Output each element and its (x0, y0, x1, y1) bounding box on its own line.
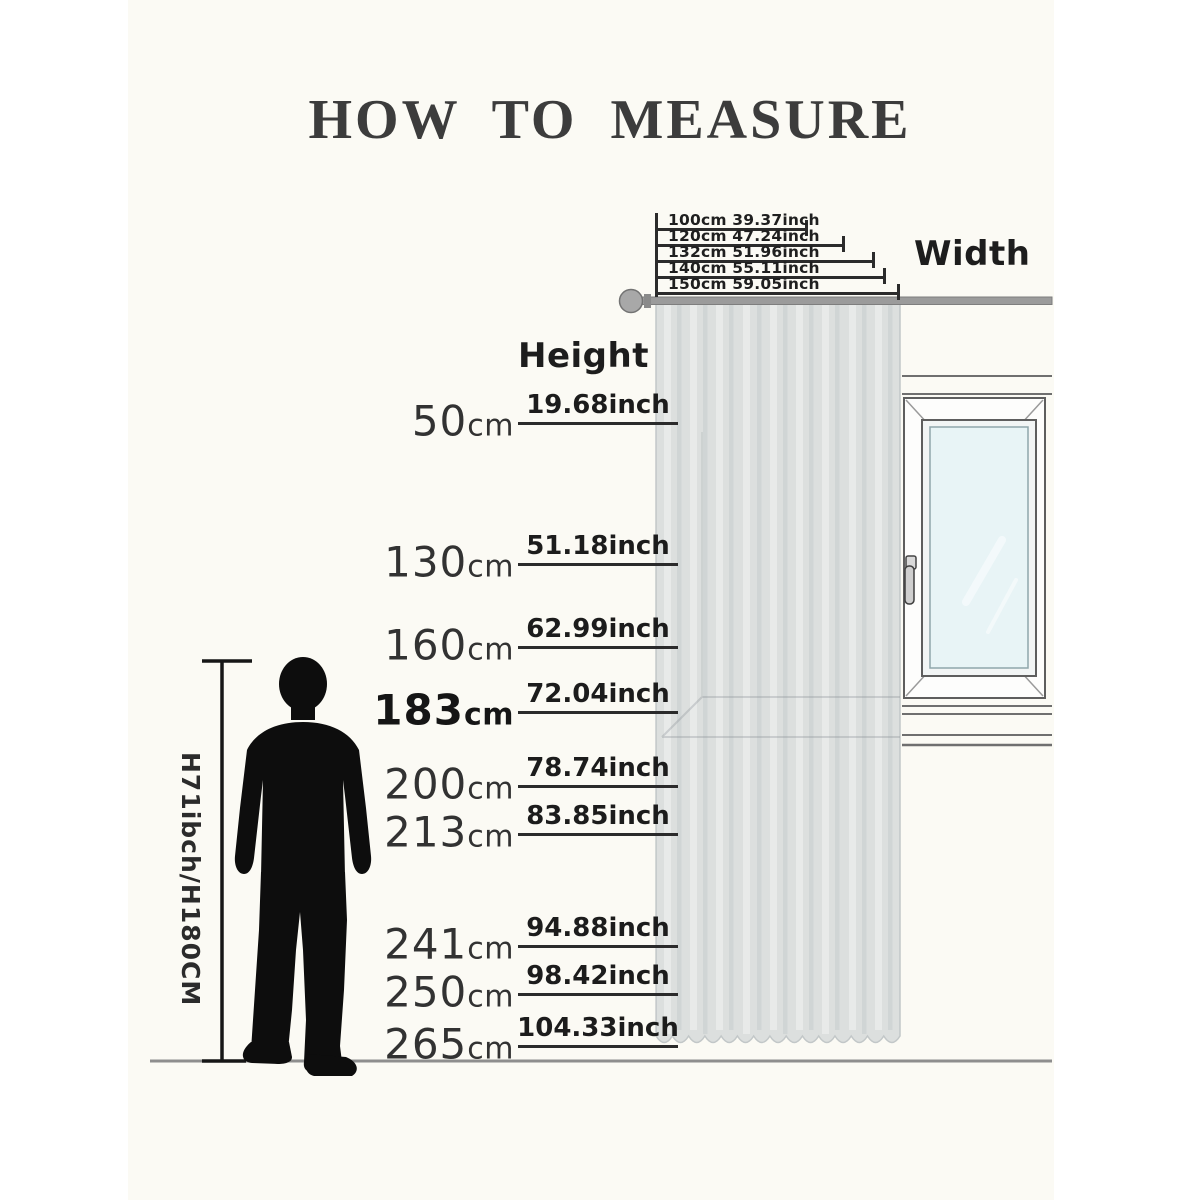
height-cm-value: 183 (373, 686, 464, 735)
height-cm-label: 130cm (230, 538, 514, 587)
height-inch-label: 72.04inch (512, 679, 684, 709)
curtain-fold (729, 304, 734, 1030)
width-measurement-label: 150cm 59.05inch (668, 275, 820, 293)
height-inch-label: 51.18inch (512, 531, 684, 561)
height-cm-unit: cm (467, 1032, 514, 1067)
height-cm-unit: cm (467, 772, 514, 807)
width-ruler-baseline (655, 213, 658, 297)
sheer-curtain (656, 302, 900, 1043)
height-cm-unit: cm (467, 409, 514, 444)
height-cm-value: 50 (412, 397, 467, 446)
curtain-fold (690, 304, 697, 1030)
curtain-fold (835, 304, 840, 1030)
height-measure-line (518, 646, 678, 649)
height-axis-label: Height (518, 336, 649, 376)
height-cm-label: 200cm (230, 760, 514, 809)
curtain-fold (703, 304, 708, 1034)
height-measure-line (518, 945, 678, 948)
height-cm-value: 241 (384, 920, 467, 969)
height-cm-value: 130 (384, 538, 467, 587)
height-inch-label: 98.42inch (512, 961, 684, 991)
window (902, 376, 1052, 745)
height-cm-label: 160cm (230, 621, 514, 670)
height-cm-unit: cm (464, 698, 514, 733)
height-cm-label: 50cm (230, 397, 514, 446)
height-cm-label: 183cm (230, 686, 514, 735)
height-cm-value: 160 (384, 621, 467, 670)
height-cm-unit: cm (467, 980, 514, 1015)
person-height-label: H71ibch/H180CM (176, 752, 205, 982)
window-sill-lines (902, 706, 1052, 745)
height-inch-label: 94.88inch (512, 913, 684, 943)
height-inch-label: 83.85inch (512, 801, 684, 831)
height-measure-line (518, 993, 678, 996)
curtain-fold (783, 304, 788, 1034)
height-measure-line (518, 711, 678, 714)
curtain-fold (875, 304, 882, 1030)
width-measure-tick (897, 284, 900, 300)
height-measure-line (518, 1045, 678, 1048)
height-cm-value: 265 (384, 1020, 467, 1069)
height-cm-unit: cm (467, 932, 514, 967)
title: HOW TO MEASURE (240, 88, 980, 152)
height-inch-label: 104.33inch (512, 1013, 684, 1043)
height-cm-value: 200 (384, 760, 467, 809)
height-inch-label: 62.99inch (512, 614, 684, 644)
height-inch-label: 19.68inch (512, 390, 684, 420)
window-glass (930, 427, 1028, 668)
width-measure-tick (842, 236, 845, 252)
height-measure-line (518, 785, 678, 788)
curtain-fold (862, 304, 867, 1034)
curtain-fold (716, 304, 723, 1030)
width-measure-tick (883, 268, 886, 284)
width-measure-tick (872, 252, 875, 268)
height-cm-unit: cm (467, 633, 514, 668)
rod-finial (620, 290, 643, 313)
height-cm-label: 213cm (230, 808, 514, 857)
curtain-fold (796, 304, 803, 1030)
curtain-fold (849, 304, 856, 1030)
window-handle (905, 556, 916, 604)
height-measure-line (518, 833, 678, 836)
height-cm-value: 250 (384, 968, 467, 1017)
width-axis-label: Width (914, 234, 1030, 274)
height-cm-unit: cm (467, 820, 514, 855)
height-measure-line (518, 563, 678, 566)
curtain-fold (809, 304, 814, 1030)
curtain-fold (822, 304, 829, 1034)
height-cm-value: 213 (384, 808, 467, 857)
height-cm-label: 241cm (230, 920, 514, 969)
height-measure-line (518, 422, 678, 425)
height-inch-label: 78.74inch (512, 753, 684, 783)
curtain-fold (743, 304, 750, 1034)
curtain-fold (888, 304, 893, 1030)
height-cm-label: 265cm (230, 1020, 514, 1069)
curtain-fold (757, 304, 762, 1030)
curtain-fold (770, 304, 777, 1030)
how-to-measure-infographic: HOW TO MEASURE Height Width 100cm 39.37i… (0, 0, 1200, 1200)
window-casing-top (902, 376, 1052, 394)
rod-cap (644, 294, 651, 308)
height-cm-unit: cm (467, 550, 514, 585)
height-cm-label: 250cm (230, 968, 514, 1017)
